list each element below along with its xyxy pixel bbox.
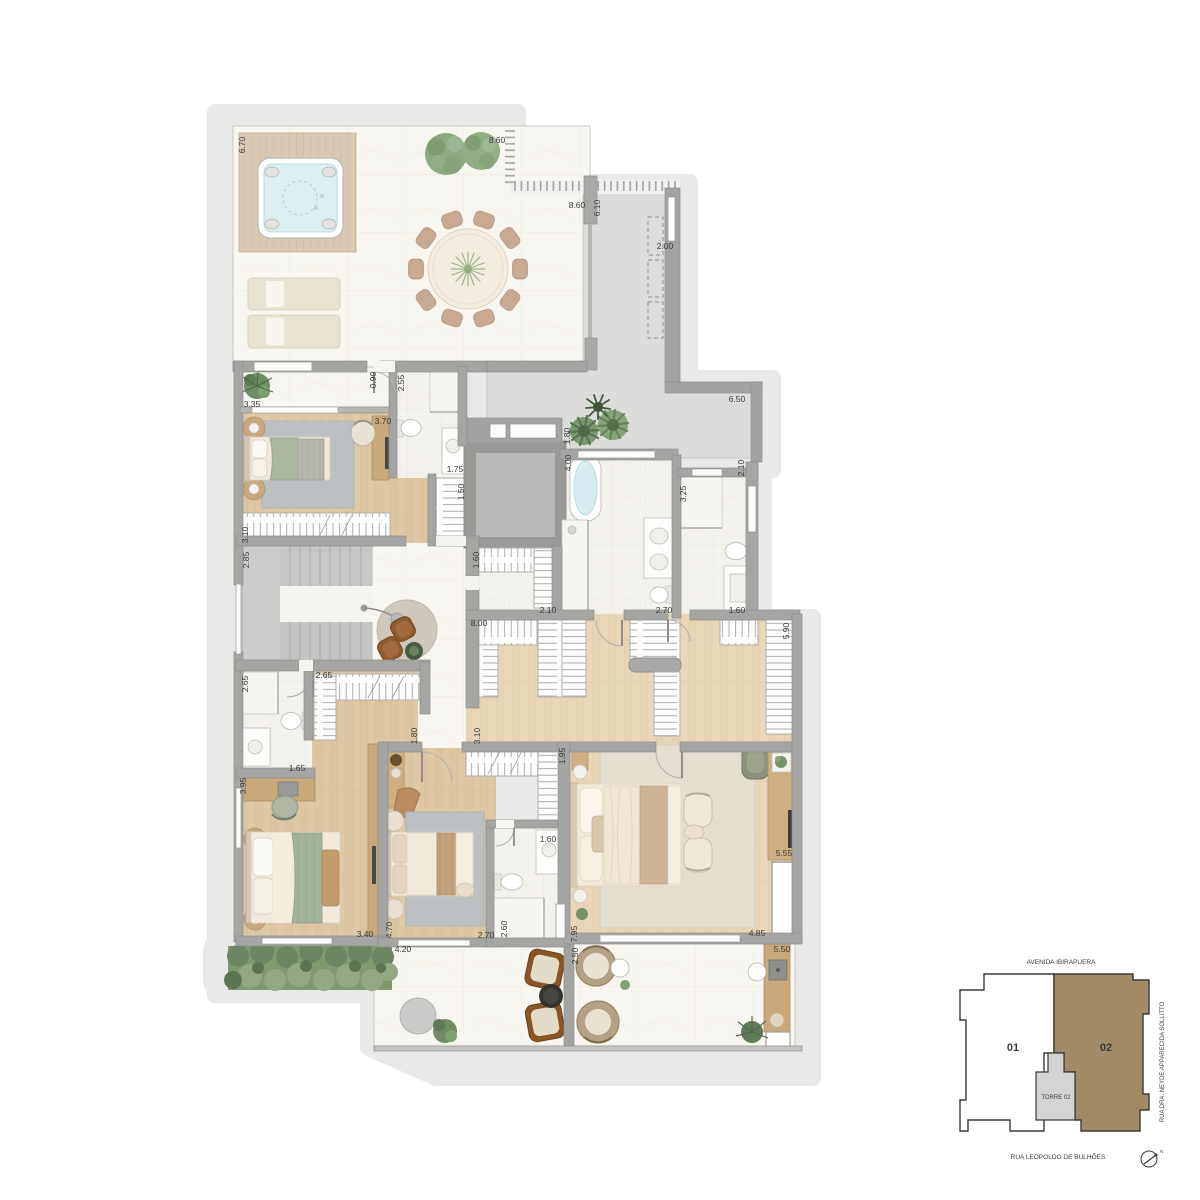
svg-text:2.10: 2.10 <box>736 459 746 476</box>
svg-text:1.95: 1.95 <box>557 747 567 764</box>
svg-text:0.90: 0.90 <box>368 371 378 388</box>
svg-text:2.85: 2.85 <box>241 551 251 568</box>
svg-text:6.10: 6.10 <box>592 199 602 216</box>
svg-text:5.90: 5.90 <box>781 622 791 639</box>
svg-text:3.70: 3.70 <box>375 416 392 426</box>
svg-text:3.10: 3.10 <box>472 727 482 744</box>
svg-text:8.60: 8.60 <box>489 135 506 145</box>
svg-text:1.75: 1.75 <box>447 464 464 474</box>
svg-text:TORRE 02: TORRE 02 <box>1041 1095 1071 1101</box>
svg-text:2.55: 2.55 <box>396 374 406 391</box>
svg-text:3.40: 3.40 <box>357 929 374 939</box>
svg-text:1.80: 1.80 <box>562 427 572 444</box>
svg-text:1.65: 1.65 <box>289 763 306 773</box>
svg-text:2.50: 2.50 <box>570 947 580 964</box>
svg-text:2.70: 2.70 <box>656 605 673 615</box>
svg-text:8.60: 8.60 <box>569 200 586 210</box>
svg-text:2.65: 2.65 <box>316 670 333 680</box>
svg-text:1.50: 1.50 <box>456 483 466 500</box>
svg-text:3.10: 3.10 <box>240 526 250 543</box>
svg-text:5.50: 5.50 <box>774 944 791 954</box>
svg-text:1.60: 1.60 <box>540 834 557 844</box>
svg-text:2.00: 2.00 <box>657 241 674 251</box>
svg-text:1.60: 1.60 <box>729 605 746 615</box>
svg-text:7.95: 7.95 <box>569 925 579 942</box>
svg-text:AVENIDA IBIRAPUERA: AVENIDA IBIRAPUERA <box>1027 959 1097 966</box>
svg-text:3.95: 3.95 <box>238 777 248 794</box>
svg-text:1.60: 1.60 <box>471 551 481 568</box>
svg-text:2.10: 2.10 <box>540 605 557 615</box>
svg-text:4.85: 4.85 <box>749 928 766 938</box>
svg-text:02: 02 <box>1100 1042 1112 1054</box>
svg-text:3.25: 3.25 <box>678 485 688 502</box>
svg-text:RUA DRA. NEYDE APPARECIDA SOLL: RUA DRA. NEYDE APPARECIDA SOLLITTO <box>1160 1001 1166 1122</box>
svg-text:4.70: 4.70 <box>384 921 394 938</box>
svg-text:6.50: 6.50 <box>729 394 746 404</box>
svg-text:5.55: 5.55 <box>776 848 793 858</box>
svg-text:01: 01 <box>1007 1042 1019 1054</box>
svg-text:N: N <box>1160 1149 1163 1154</box>
svg-text:2.65: 2.65 <box>240 675 250 692</box>
svg-text:2.60: 2.60 <box>499 920 509 937</box>
svg-text:4.00: 4.00 <box>563 454 573 471</box>
svg-text:8.00: 8.00 <box>471 618 488 628</box>
svg-text:4.20: 4.20 <box>395 944 412 954</box>
svg-text:6.70: 6.70 <box>237 136 247 153</box>
svg-text:1.80: 1.80 <box>409 727 419 744</box>
svg-text:RUA LEOPOLDO DE BULHÕES: RUA LEOPOLDO DE BULHÕES <box>1011 1152 1106 1161</box>
svg-text:3.35: 3.35 <box>244 399 261 409</box>
svg-text:2.70: 2.70 <box>478 930 495 940</box>
